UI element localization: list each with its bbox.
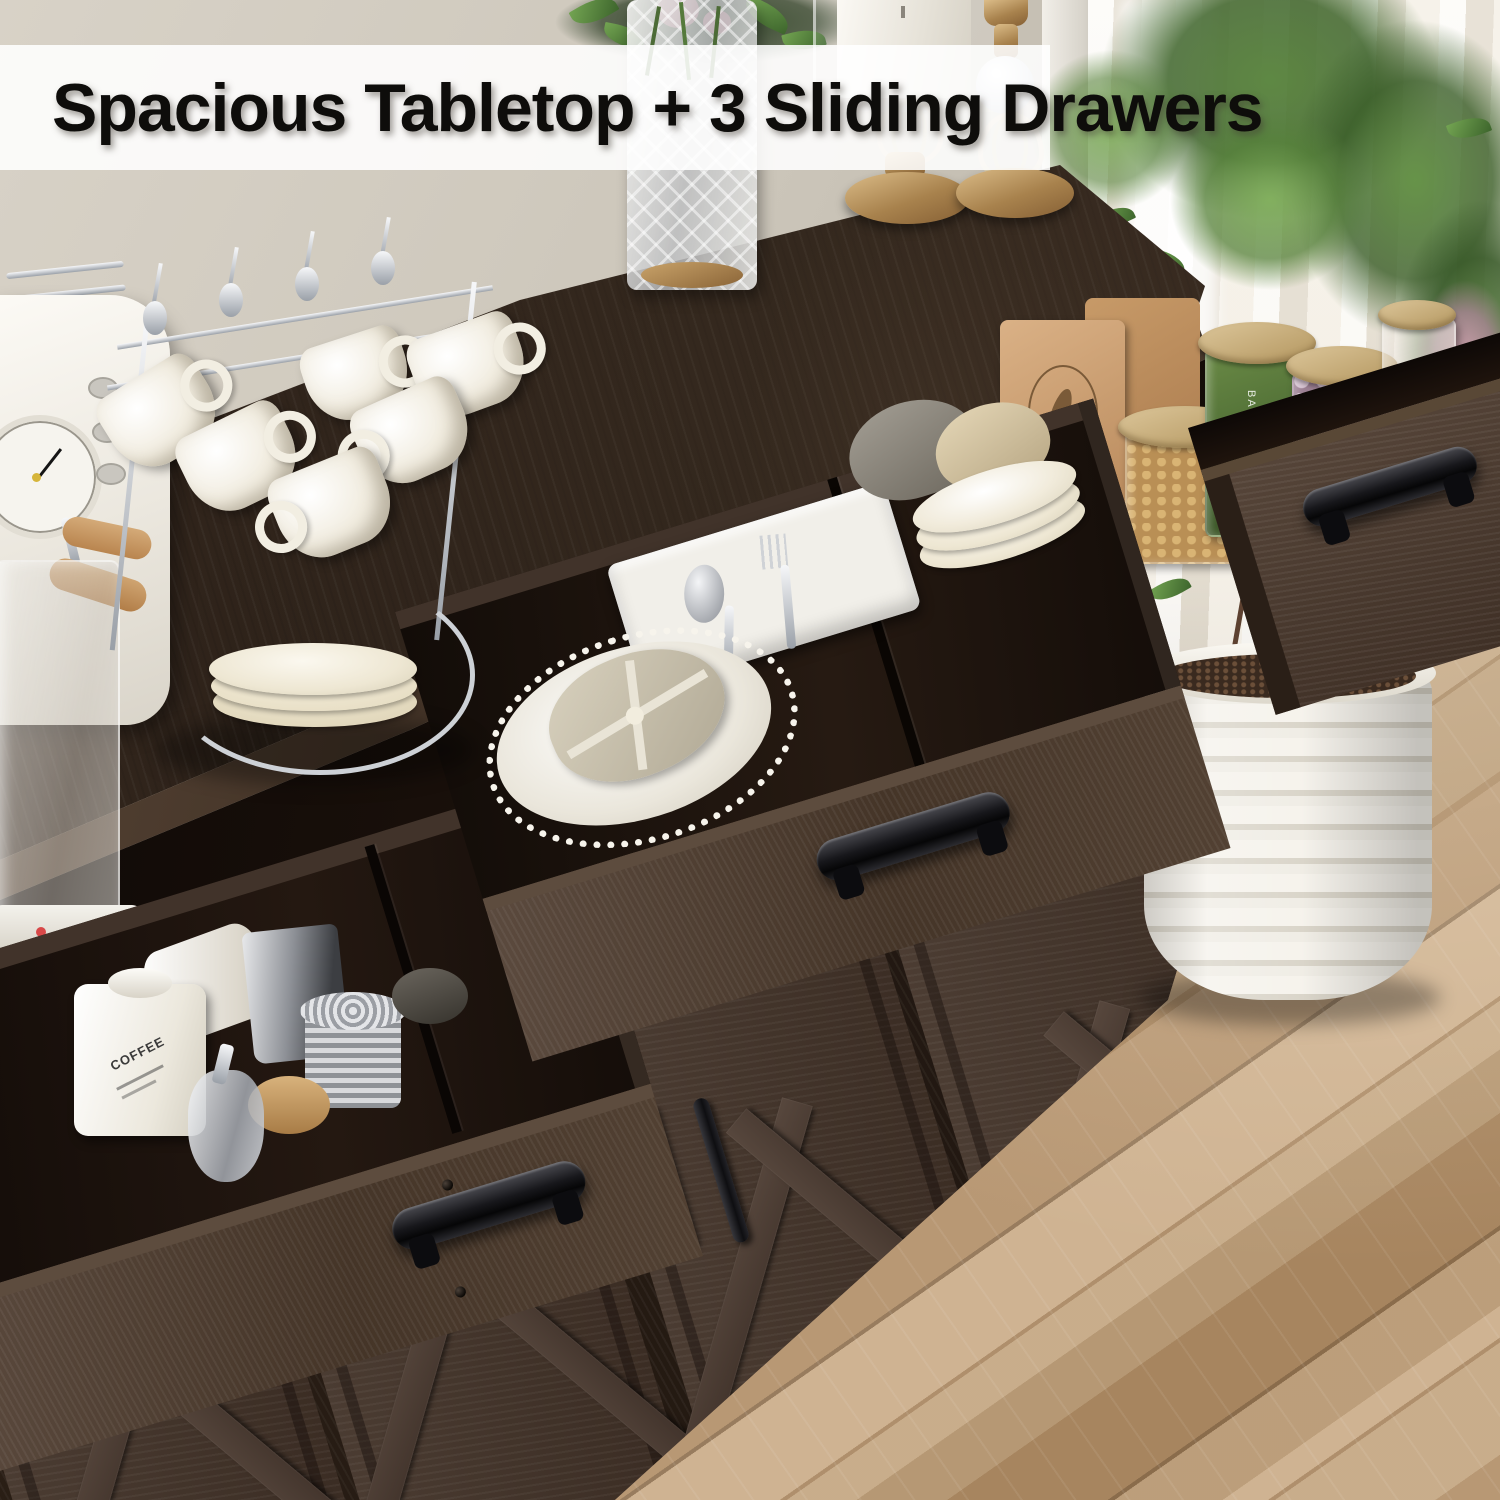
rack-post	[110, 322, 149, 651]
mug-tree	[95, 275, 595, 815]
candle-wick	[901, 6, 905, 18]
bamboo-lid	[1378, 300, 1456, 330]
glass-sugar-dispenser	[188, 1070, 264, 1182]
coffee-drawer-items: COFFEE	[0, 880, 560, 1240]
cup-handle	[247, 493, 315, 561]
dispenser-spout	[211, 1043, 234, 1085]
gauge-center	[32, 473, 41, 482]
vase-base-ring	[641, 262, 743, 288]
saucer-top	[209, 643, 417, 695]
cup-handle	[255, 402, 325, 472]
candlestick-base	[956, 168, 1074, 218]
cup-handle	[170, 350, 242, 422]
hanging-spoon-bowl	[143, 301, 167, 335]
coffee-canister: COFFEE	[74, 984, 206, 1136]
fork-handle	[780, 565, 796, 649]
canister-knob	[108, 968, 172, 998]
product-photo-sideboard: BAY LEAVES	[0, 0, 1500, 1500]
promo-banner: Spacious Tabletop + 3 Sliding Drawers	[0, 45, 1050, 170]
hanging-spoon-bowl	[371, 251, 395, 285]
finial-cup	[984, 0, 1028, 26]
banner-text: Spacious Tabletop + 3 Sliding Drawers	[52, 69, 1263, 147]
cup-handle	[486, 315, 553, 382]
hanging-spoon-bowl	[295, 267, 319, 301]
spoon	[684, 564, 725, 623]
canister-lid	[300, 992, 406, 1030]
hanging-spoon-bowl	[219, 283, 243, 317]
dark-bowl	[392, 968, 468, 1024]
